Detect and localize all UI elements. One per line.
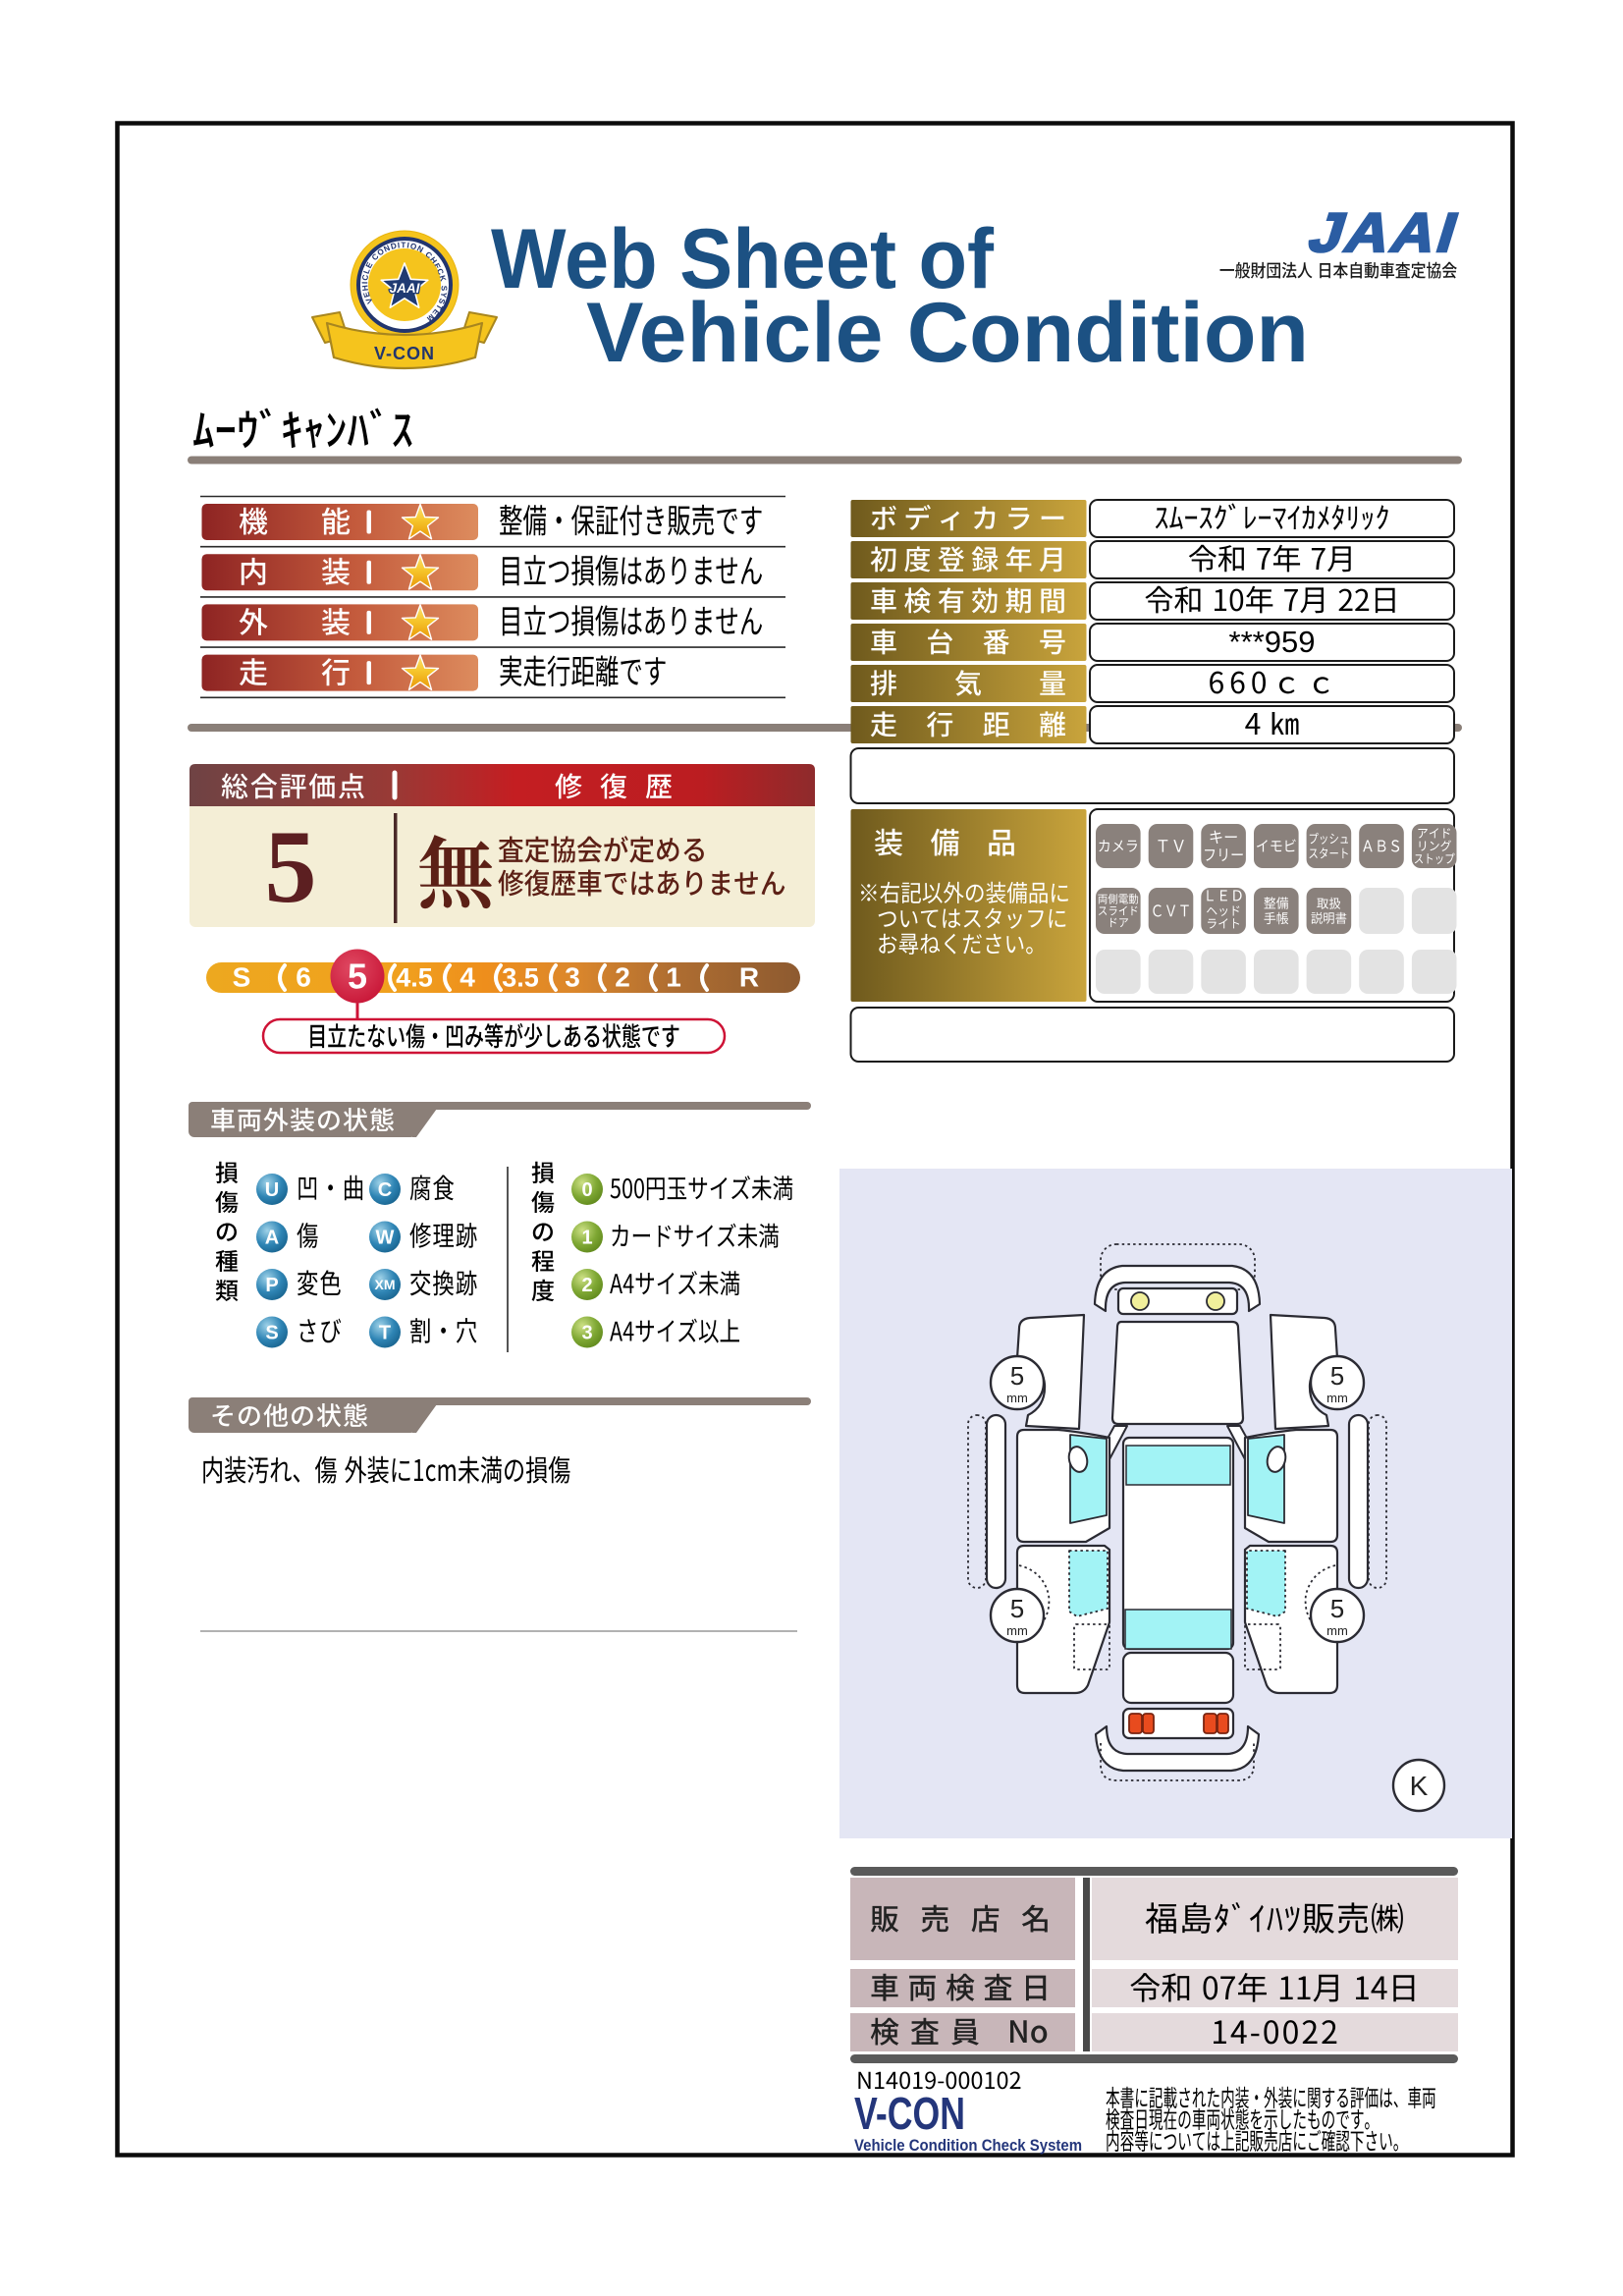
svg-text:5: 5 (265, 809, 317, 924)
svg-text:3: 3 (581, 1323, 592, 1344)
svg-text:mm: mm (1006, 1623, 1028, 1638)
svg-text:5: 5 (1010, 1361, 1024, 1391)
svg-text:1: 1 (666, 962, 681, 993)
svg-text:0: 0 (581, 1179, 592, 1201)
svg-text:T: T (379, 1323, 391, 1344)
svg-text:4.5: 4.5 (396, 963, 433, 993)
svg-text:6: 6 (296, 962, 311, 993)
svg-text:Vehicle Condition: Vehicle Condition (586, 286, 1309, 380)
svg-text:5: 5 (348, 957, 367, 997)
svg-text:U: U (265, 1179, 279, 1201)
svg-text:mm: mm (1326, 1391, 1348, 1405)
svg-text:Vehicle Condition Check System: Vehicle Condition Check System (854, 2137, 1082, 2155)
svg-text:S: S (265, 1323, 278, 1344)
svg-text:5: 5 (1330, 1594, 1344, 1623)
svg-text:XM: XM (375, 1277, 396, 1292)
svg-text:mm: mm (1326, 1623, 1348, 1638)
svg-text:R: R (739, 962, 759, 993)
svg-text:JAAI: JAAI (390, 281, 420, 296)
svg-text:***959: ***959 (1229, 625, 1316, 659)
svg-text:4: 4 (460, 962, 475, 993)
svg-text:W: W (376, 1228, 395, 1249)
svg-text:5: 5 (1330, 1361, 1344, 1391)
svg-text:P: P (265, 1275, 278, 1296)
svg-text:3: 3 (565, 962, 580, 993)
svg-text:1: 1 (581, 1228, 592, 1249)
svg-text:V-CON: V-CON (374, 344, 435, 363)
svg-text:JAAI: JAAI (1302, 202, 1468, 264)
svg-text:C: C (378, 1179, 392, 1201)
svg-text:2: 2 (615, 962, 630, 993)
svg-text:mm: mm (1006, 1391, 1028, 1405)
svg-text:2: 2 (581, 1275, 592, 1296)
svg-text:3.5: 3.5 (502, 963, 539, 993)
svg-text:S: S (233, 962, 251, 993)
svg-text:V-CON: V-CON (854, 2088, 965, 2139)
svg-text:A: A (265, 1228, 279, 1249)
svg-text:K: K (1410, 1771, 1429, 1801)
svg-text:5: 5 (1010, 1594, 1024, 1623)
